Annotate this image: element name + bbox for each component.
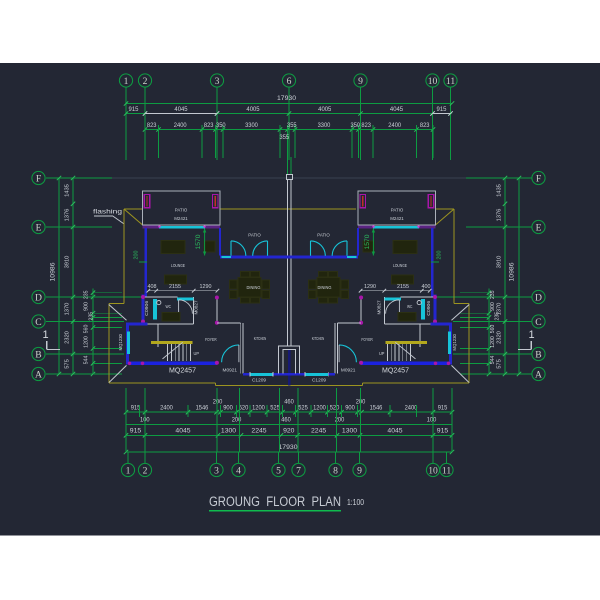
svg-text:PATIO: PATIO [248,233,261,238]
svg-text:3: 3 [215,76,220,87]
svg-text:2400: 2400 [388,123,401,129]
svg-text:F: F [36,173,41,184]
svg-text:MQ2457: MQ2457 [169,367,196,374]
svg-text:915: 915 [437,428,449,435]
svg-text:1: 1 [528,329,534,341]
svg-text:E: E [36,222,42,233]
svg-text:900: 900 [223,406,233,412]
svg-text:KITCHEN: KITCHEN [312,336,325,341]
svg-text:920: 920 [283,428,295,435]
svg-text:flashing: flashing [93,209,122,216]
svg-text:10986: 10986 [510,262,516,282]
svg-text:M0921: M0921 [223,368,238,373]
svg-text:355: 355 [287,123,297,129]
svg-text:7: 7 [296,465,301,476]
svg-text:1300: 1300 [221,428,237,435]
svg-text:1: 1 [126,465,131,476]
svg-text:MQ2457: MQ2457 [382,367,409,374]
svg-text:3300: 3300 [318,123,331,129]
svg-text:235: 235 [84,290,90,299]
svg-text:1200: 1200 [313,406,326,412]
svg-text:1370: 1370 [64,303,70,316]
svg-text:UP: UP [194,351,200,356]
svg-text:C1209: C1209 [252,377,267,382]
svg-text:560: 560 [490,325,496,334]
svg-text:2245: 2245 [311,428,327,435]
svg-text:4005: 4005 [318,106,332,113]
svg-text:4045: 4045 [390,106,404,113]
svg-text:235: 235 [88,312,94,321]
svg-text:11: 11 [446,76,455,87]
svg-text:460: 460 [284,399,294,405]
svg-text:3300: 3300 [245,123,258,129]
svg-text:915: 915 [130,428,142,435]
svg-text:M2421: M2421 [390,216,404,221]
svg-text:A: A [535,369,542,380]
svg-text:200: 200 [232,418,242,424]
svg-text:LOUNGE: LOUNGE [393,263,407,268]
svg-text:DINING: DINING [318,285,332,290]
svg-text:17930: 17930 [279,444,299,451]
svg-text:M0827: M0827 [194,300,199,315]
svg-text:915: 915 [129,106,139,113]
svg-text:575: 575 [496,359,502,369]
svg-text:2245: 2245 [251,428,267,435]
svg-text:1546: 1546 [370,406,383,412]
svg-text:FOYER: FOYER [205,337,217,342]
svg-text:350: 350 [216,123,226,129]
svg-text:520: 520 [330,406,340,412]
svg-text:900: 900 [490,302,496,311]
svg-text:2: 2 [143,465,148,476]
svg-text:10: 10 [428,76,438,87]
svg-text:E: E [536,222,542,233]
svg-text:1200: 1200 [84,336,90,348]
svg-text:544: 544 [490,356,496,365]
svg-text:915: 915 [437,106,447,113]
svg-text:100: 100 [427,418,437,424]
svg-text:408: 408 [148,284,157,290]
svg-text:1: 1 [124,76,129,87]
svg-text:900: 900 [84,302,90,311]
svg-text:2155: 2155 [397,284,409,290]
svg-text:A: A [35,369,42,380]
svg-text:235: 235 [490,290,496,299]
svg-text:1376: 1376 [496,209,502,222]
svg-text:LOUNGE: LOUNGE [171,263,185,268]
svg-text:1:100: 1:100 [347,498,364,507]
svg-text:6: 6 [287,76,292,87]
svg-text:520: 520 [239,406,249,412]
svg-text:5: 5 [276,465,281,476]
svg-text:823: 823 [420,123,430,129]
svg-text:2155: 2155 [169,284,181,290]
svg-text:1546: 1546 [196,406,209,412]
svg-text:1200: 1200 [252,406,265,412]
svg-text:3910: 3910 [496,256,502,269]
svg-text:575: 575 [64,359,70,369]
svg-text:350: 350 [351,123,361,129]
svg-text:1200: 1200 [490,336,496,348]
svg-text:MQ1230: MQ1230 [118,333,123,350]
svg-text:C0906: C0906 [144,300,149,316]
svg-text:M2421: M2421 [174,216,188,221]
svg-text:1570: 1570 [364,234,371,250]
svg-text:823: 823 [361,123,371,129]
svg-text:2400: 2400 [405,406,418,412]
svg-text:KITCHEN: KITCHEN [254,336,267,341]
svg-text:UP: UP [379,351,385,356]
svg-text:4045: 4045 [387,428,403,435]
svg-text:200: 200 [437,250,443,259]
svg-text:PATIO: PATIO [391,207,404,212]
svg-text:915: 915 [438,406,448,412]
svg-text:2320: 2320 [64,331,70,344]
svg-text:10: 10 [428,465,438,476]
svg-text:D: D [35,292,42,303]
svg-text:2400: 2400 [174,123,187,129]
svg-text:10986: 10986 [51,262,57,282]
svg-text:1: 1 [42,329,48,341]
svg-text:544: 544 [84,356,90,365]
svg-text:DINING: DINING [247,285,261,290]
svg-text:4045: 4045 [175,428,191,435]
svg-text:200: 200 [213,399,223,405]
svg-text:PATIO: PATIO [175,207,188,212]
svg-text:1300: 1300 [342,428,358,435]
svg-text:2320: 2320 [496,331,502,344]
svg-text:355: 355 [280,135,290,141]
svg-text:MQ1230: MQ1230 [452,333,457,350]
svg-text:D: D [535,292,542,303]
svg-text:8: 8 [333,465,338,476]
svg-text:B: B [535,349,541,360]
svg-text:1435: 1435 [64,184,70,197]
svg-text:1570: 1570 [195,234,202,250]
svg-text:823: 823 [204,123,214,129]
svg-text:2400: 2400 [160,406,173,412]
svg-text:9: 9 [358,76,363,87]
svg-text:1376: 1376 [64,209,70,222]
svg-text:4005: 4005 [246,106,260,113]
svg-text:525: 525 [270,406,280,412]
svg-text:460: 460 [281,418,291,424]
svg-text:C: C [35,317,41,328]
svg-text:WC: WC [166,304,172,309]
svg-text:2: 2 [143,76,148,87]
svg-text:B: B [35,349,41,360]
svg-text:3910: 3910 [64,256,70,269]
svg-text:F: F [536,173,541,184]
svg-text:11: 11 [442,465,451,476]
svg-text:FOYER: FOYER [361,337,373,342]
svg-text:560: 560 [84,325,90,334]
svg-text:4045: 4045 [174,106,188,113]
svg-text:17930: 17930 [277,95,297,102]
svg-text:1290: 1290 [200,284,212,290]
svg-text:M0921: M0921 [341,368,356,373]
svg-text:823: 823 [147,123,157,129]
svg-text:900: 900 [345,406,355,412]
svg-text:3: 3 [214,465,219,476]
svg-text:200: 200 [134,250,140,259]
svg-text:525: 525 [298,406,308,412]
svg-text:C0906: C0906 [426,300,431,316]
svg-text:C1209: C1209 [312,377,327,382]
svg-text:PATIO: PATIO [317,233,330,238]
svg-text:GROUNG FLOOR PLAN: GROUNG FLOOR PLAN [209,494,341,510]
svg-text:WC: WC [407,304,413,309]
svg-text:C: C [535,317,541,328]
svg-text:M0827: M0827 [376,300,381,315]
svg-text:4: 4 [236,465,241,476]
svg-text:1290: 1290 [364,284,376,290]
svg-text:1435: 1435 [496,184,502,197]
svg-text:235: 235 [495,312,501,321]
svg-text:400: 400 [422,284,431,290]
svg-text:9: 9 [357,465,362,476]
